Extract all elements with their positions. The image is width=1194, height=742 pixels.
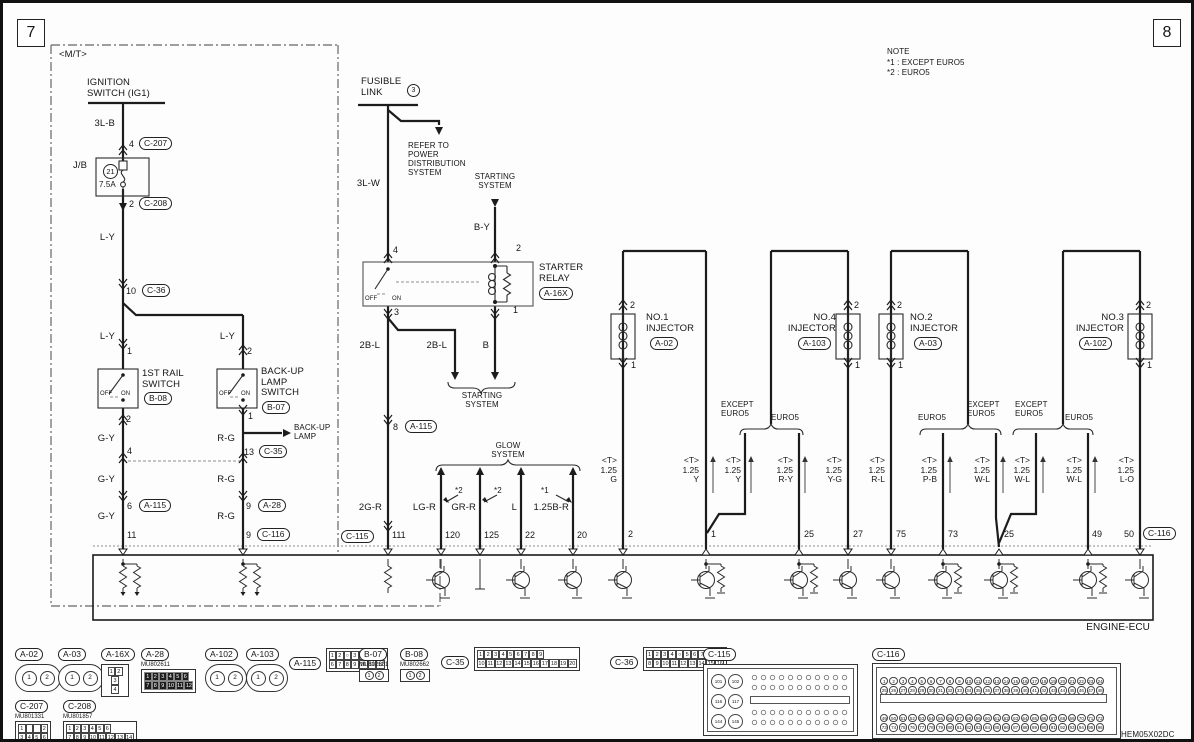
pin-cell: 20 — [568, 659, 577, 668]
ecu-pin-111: 111 — [392, 530, 406, 540]
pin-cell — [26, 724, 34, 733]
connector-b07: B-07 MU802601 12 — [359, 644, 389, 682]
wire-label-2b-l-1: 2B-L — [350, 341, 380, 352]
pin-cell: 6 — [691, 650, 699, 659]
ecu-pin-73: 73 — [948, 529, 958, 539]
pin-cell: 144 — [711, 714, 726, 729]
pin-cell: 6 — [182, 672, 190, 681]
pin-cell: 7 — [522, 650, 530, 659]
connector-ref-a102: A-102 — [1079, 337, 1112, 350]
pin-number-1b: 1 — [248, 411, 253, 421]
ecu-pin-2: 2 — [628, 529, 633, 539]
pin-cell: 4 — [167, 672, 175, 681]
pin-cell: 5 — [507, 650, 515, 659]
backup-lamp-dest-label: BACK-UP LAMP — [294, 423, 330, 441]
pin-cell: 117 — [728, 694, 743, 709]
pin-cell: 12 — [679, 659, 688, 668]
wire-spec-w-l-1: <T> 1.25 W-L — [964, 456, 990, 485]
connector-c35: C-35 123456789 1011121314151617181920 — [441, 644, 580, 671]
wire-label-r-g-1: R-G — [205, 434, 235, 445]
pin-cell: 7 — [144, 681, 152, 690]
ecu-pin-125: 125 — [484, 530, 499, 540]
starting-system-top-label: STARTING SYSTEM — [465, 172, 525, 190]
pin-cell: 18 — [549, 659, 558, 668]
connector-ref-a03: A-03 — [914, 337, 942, 350]
wire-label-3l-w: 3L-W — [350, 179, 380, 190]
pin-cell: 2 — [484, 650, 492, 659]
pin-cell: 76 — [908, 723, 916, 731]
pin-number-9b: 9 — [246, 530, 251, 540]
pin-cell: 8 — [344, 660, 352, 669]
c116-key-slot — [880, 694, 1107, 703]
pin-cell: 14 — [125, 733, 134, 742]
pin-cell: 2 — [83, 671, 98, 686]
connector-a16x: A-16X 12 3 4 — [101, 644, 135, 697]
wiring-diagram-page: 7 8 NOTE *1 : EXCEPT EURO5 *2 : EURO5 <M… — [0, 0, 1194, 742]
wire-label-b-y: B-Y — [460, 223, 490, 234]
switch-on-label-1: ON — [121, 391, 130, 398]
variant-except-euro5-2: EXCEPT EURO5 — [967, 400, 1000, 418]
pin-number-11: 11 — [127, 530, 136, 540]
pin-cell: 1 — [329, 651, 337, 660]
pin-number-4b: 4 — [127, 446, 132, 456]
pin-number-1: 1 — [127, 346, 132, 356]
pin-cell: 81 — [955, 723, 963, 731]
pin-cell: 9 — [653, 659, 661, 668]
injector-4-pin-2: 2 — [854, 300, 859, 310]
connector-c207: C-207 MU801331 12 3456 — [15, 696, 51, 742]
pin-cell: 11 — [670, 659, 679, 668]
wire-spec-y-2: <T> 1.25 Y — [715, 456, 741, 485]
wire-label-2g-r: 2G-R — [352, 503, 382, 514]
connector-ref-a28: A-28 — [258, 499, 286, 512]
injector-2-pin-2: 2 — [897, 300, 902, 310]
pin-cell: 4 — [89, 724, 97, 733]
wire-label-g-y-1: G-Y — [85, 434, 115, 445]
connector-c208-part: MU801857 — [63, 714, 137, 721]
variant-except-euro5-3: EXCEPT EURO5 — [1015, 400, 1048, 418]
wire-spec-y-1: <T> 1.25 Y — [673, 456, 699, 485]
connector-a102-label: A-102 — [205, 648, 238, 661]
connector-ref-c115: C-115 — [341, 530, 374, 543]
pin-cell: 5 — [33, 733, 41, 742]
connector-ref-c35: C-35 — [259, 445, 287, 458]
diagram-code: HEM05X02DC — [1121, 730, 1174, 739]
pin-cell: 1 — [646, 650, 654, 659]
connector-a02-body: 12 — [15, 664, 61, 692]
wire-spec-p-b: <T> 1.25 P-B — [911, 456, 937, 485]
pin-cell: 1 — [406, 671, 415, 680]
pin-cell: 1 — [477, 650, 485, 659]
backup-lamp-switch-label: BACK-UP LAMP SWITCH — [261, 367, 304, 399]
connector-a03-body: 12 — [58, 664, 104, 692]
connector-a28: A-28 MU802611 123456 789101112 — [141, 644, 196, 693]
pin-cell: 3 — [351, 651, 359, 660]
connector-a28-label: A-28 — [141, 648, 169, 661]
pin-cell: 10 — [167, 681, 176, 690]
injector-2-pin-1: 1 — [898, 360, 903, 370]
connector-b08-body: 12 — [400, 669, 430, 682]
pin-number-2: 2 — [129, 199, 134, 209]
connector-ref-c208: C-208 — [139, 197, 172, 210]
pin-cell: 6 — [41, 733, 49, 742]
connector-a115-label: A-115 — [289, 657, 321, 670]
pin-cell: 88 — [1021, 723, 1029, 731]
pin-number-6: 6 — [127, 501, 132, 511]
connector-ref-c116-right: C-116 — [1143, 527, 1176, 540]
connector-c208-body: 123456 7891011121314 — [63, 721, 137, 742]
connector-ref-c36: C-36 — [142, 284, 170, 297]
pin-cell: 102 — [728, 674, 743, 689]
pin-cell: 84 — [983, 723, 991, 731]
injector-2-label: NO.2 INJECTOR — [910, 313, 958, 334]
pin-cell: 2 — [416, 671, 425, 680]
pin-cell: 2 — [375, 671, 384, 680]
connector-ref-a115b: A-115 — [405, 420, 437, 433]
pin-cell: 2 — [336, 651, 344, 660]
ecu-pin-75: 75 — [896, 529, 906, 539]
wire-spec-r-l: <T> 1.25 R-L — [859, 456, 885, 485]
connector-ref-b08: B-08 — [144, 392, 172, 405]
pin-cell: 6 — [104, 724, 112, 733]
pin-number-9: 9 — [246, 501, 251, 511]
pin-cell: 82 — [965, 723, 973, 731]
connector-c207-label: C-207 — [15, 700, 48, 713]
wire-label-r-g-2: R-G — [205, 475, 235, 486]
note-title: NOTE — [887, 47, 910, 56]
pin-cell: 12 — [184, 681, 193, 690]
pin-cell: 75 — [899, 723, 907, 731]
pin-cell: 101 — [711, 674, 726, 689]
injector-4-pin-1: 1 — [855, 360, 860, 370]
injector-1-pin-2: 2 — [630, 300, 635, 310]
connector-c115-body: 101102116117144145 — [703, 664, 858, 736]
connector-a16x-body: 12 3 4 — [101, 664, 129, 697]
pin-cell: 1 — [365, 671, 374, 680]
connector-ref-a115: A-115 — [139, 499, 171, 512]
connector-ref-b07: B-07 — [262, 401, 290, 414]
connector-c35-label: C-35 — [441, 656, 469, 669]
ecu-pin-120: 120 — [445, 530, 460, 540]
pin-cell: 8 — [152, 681, 160, 690]
transmission-variant-label: <M/T> — [59, 50, 87, 61]
pin-cell: 3 — [81, 724, 89, 733]
connector-c115-label: C-115 — [703, 648, 736, 661]
wire-label-r-g-3: R-G — [205, 512, 235, 523]
pin-cell: 4 — [26, 733, 34, 742]
connector-a103-label: A-103 — [246, 648, 279, 661]
wire-label-b: B — [459, 341, 489, 352]
injector-1-pin-1: 1 — [631, 360, 636, 370]
pin-number-8: 8 — [393, 422, 398, 432]
injector-3-label: NO.3 INJECTOR — [1066, 313, 1124, 334]
pin-cell: 7 — [66, 733, 74, 742]
wire-label-l-y-3: L-Y — [205, 332, 235, 343]
pin-cell: 15 — [522, 659, 531, 668]
pin-cell: 3 — [661, 650, 669, 659]
pin-cell — [33, 724, 41, 733]
note-line-2: *2 : EURO5 — [887, 68, 930, 77]
pin-cell: 13 — [115, 733, 124, 742]
pin-cell: 80 — [946, 723, 954, 731]
starting-system-bottom-label: STARTING SYSTEM — [452, 391, 512, 409]
connector-c36-label: C-36 — [610, 656, 638, 669]
connector-c35-body: 123456789 1011121314151617181920 — [474, 647, 580, 671]
wire-label-3l-b: 3L-B — [85, 119, 115, 130]
refer-power-distribution-label: REFER TO POWER DISTRIBUTION SYSTEM — [408, 141, 466, 177]
pin-cell: 90 — [1040, 723, 1048, 731]
pin-cell: 8 — [646, 659, 654, 668]
injector-3-pin-1: 1 — [1147, 360, 1152, 370]
relay-off-label: OFF — [365, 296, 377, 303]
injector-3-pin-2: 2 — [1146, 300, 1151, 310]
pin-cell: 19 — [559, 659, 568, 668]
pin-cell: ○ — [344, 651, 352, 660]
connector-c115: C-115 101102116117144145 — [703, 644, 858, 736]
pin-cell: 2 — [269, 671, 284, 686]
pin-cell: 1 — [65, 671, 80, 686]
ecu-pin-25a: 25 — [804, 529, 814, 539]
pin-cell: 2 — [74, 724, 82, 733]
page-number-right: 8 — [1153, 19, 1181, 47]
ecu-pin-50: 50 — [1124, 529, 1134, 539]
variant-euro5-2: EURO5 — [918, 413, 946, 422]
connector-b08-label: B-08 — [400, 648, 428, 661]
pin-cell: 145 — [728, 714, 743, 729]
fuse-rating: 7.5A — [99, 180, 116, 189]
pin-cell: 11 — [176, 681, 185, 690]
ecu-pin-22: 22 — [525, 530, 535, 540]
pin-cell: 13 — [688, 659, 697, 668]
pin-cell: 2 — [115, 667, 123, 676]
pin-cell: 6 — [514, 650, 522, 659]
switch-on-label-2: ON — [241, 391, 250, 398]
wire-label-2b-l-2: 2B-L — [417, 341, 447, 352]
wire-spec-l-o: <T> 1.25 L-O — [1108, 456, 1134, 485]
pin-cell: 5 — [174, 672, 182, 681]
pin-cell: 9 — [351, 660, 359, 669]
variant-except-euro5-1: EXCEPT EURO5 — [721, 400, 754, 418]
pin-cell: 9 — [159, 681, 167, 690]
star1-marker: *1 — [541, 486, 549, 495]
wire-label-g-y-2: G-Y — [85, 475, 115, 486]
connector-a28-part: MU802611 — [141, 662, 196, 669]
pin-cell: 10 — [89, 733, 98, 742]
pin-cell: 1 — [18, 724, 26, 733]
connector-a102-body: 12 — [205, 664, 247, 692]
injector-4-label: NO.4 INJECTOR — [778, 313, 836, 334]
pin-cell: 2 — [152, 672, 160, 681]
ecu-pin-25b: 25 — [1004, 529, 1014, 539]
engine-ecu-label: ENGINE-ECU — [1078, 623, 1150, 634]
pin-cell: 116 — [711, 694, 726, 709]
pin-number-13: 13 — [244, 447, 254, 457]
c115-key-slot — [750, 696, 850, 704]
ecu-pin-20: 20 — [577, 530, 587, 540]
pin-number-2b: 2 — [247, 346, 252, 356]
pin-cell: 10 — [477, 659, 486, 668]
pin-cell: 74 — [889, 723, 897, 731]
wire-label-l-y-2: L-Y — [85, 332, 115, 343]
pin-cell: 77 — [918, 723, 926, 731]
pin-cell: 94 — [1077, 723, 1085, 731]
pin-cell: 4 — [668, 650, 676, 659]
pin-cell: 1 — [144, 672, 152, 681]
connector-a28-body: 123456 789101112 — [141, 669, 196, 693]
pin-cell: 3 — [492, 650, 500, 659]
wire-label-g-y-3: G-Y — [85, 512, 115, 523]
pin-cell: 87 — [1011, 723, 1019, 731]
connector-b08: B-08 MU802662 12 — [400, 644, 430, 682]
connector-ref-c207: C-207 — [139, 137, 172, 150]
connector-ref-a16x: A-16X — [539, 287, 573, 300]
connector-c116: C-116 1234567891011121314151617181920212… — [872, 644, 1121, 739]
pin-cell: 85 — [993, 723, 1001, 731]
pin-cell: 5 — [96, 724, 104, 733]
wire-spec-y-g: <T> 1.25 Y-G — [816, 456, 842, 485]
pin-cell: 12 — [495, 659, 504, 668]
ignition-switch-label: IGNITION SWITCH (IG1) — [87, 78, 150, 99]
starter-relay-label: STARTER RELAY — [539, 263, 583, 284]
pin-cell: 93 — [1068, 723, 1076, 731]
connector-ref-c116-left: C-116 — [257, 528, 290, 541]
connector-c208: C-208 MU801857 123456 7891011121314 — [63, 696, 137, 742]
pin-cell: 3 — [111, 676, 119, 685]
connector-b07-part: MU802601 — [359, 662, 389, 669]
connector-a03: A-03 12 — [58, 644, 104, 692]
pin-number-2c: 2 — [126, 414, 131, 424]
page-number-left: 7 — [17, 19, 45, 47]
pin-cell: 8 — [74, 733, 82, 742]
c115-pin-row — [750, 682, 849, 693]
pin-cell: 2 — [653, 650, 661, 659]
connector-a102: A-102 12 — [205, 644, 247, 692]
c115-large-pins: 101102116117144145 — [710, 670, 748, 730]
pin-cell: 2 — [228, 671, 243, 686]
connector-c208-label: C-208 — [63, 700, 96, 713]
connector-a02-label: A-02 — [15, 648, 43, 661]
connector-a03-label: A-03 — [58, 648, 86, 661]
wire-label-lg-r: LG-R — [406, 503, 436, 514]
pin-cell: 16 — [531, 659, 540, 668]
connector-a103: A-103 12 — [246, 644, 288, 692]
connector-c116-label: C-116 — [872, 648, 905, 661]
connector-c207-body: 12 3456 — [15, 721, 51, 742]
injector-1-label: NO.1 INJECTOR — [646, 313, 694, 334]
pin-cell: 1 — [22, 671, 37, 686]
connector-c207-part: MU801331 — [15, 714, 51, 721]
rail-switch-label: 1ST RAIL SWITCH — [142, 369, 184, 390]
note-line-1: *1 : EXCEPT EURO5 — [887, 58, 965, 67]
pin-cell: 13 — [504, 659, 513, 668]
pin-cell: 4 — [111, 685, 119, 694]
variant-euro5-1: EURO5 — [771, 413, 799, 422]
relay-pin-4: 4 — [393, 245, 398, 255]
switch-off-label-1: OFF — [100, 391, 112, 398]
pin-cell: 78 — [927, 723, 935, 731]
wire-spec-w-l-2: <T> 1.25 W-L — [1004, 456, 1030, 485]
relay-pin-1: 1 — [513, 305, 518, 315]
pin-cell: 11 — [486, 659, 495, 668]
pin-cell: 8 — [529, 650, 537, 659]
pin-cell: 92 — [1058, 723, 1066, 731]
relay-on-label: ON — [392, 296, 401, 303]
connector-b07-body: 12 — [359, 669, 389, 682]
pin-cell: 14 — [513, 659, 522, 668]
ecu-pin-27: 27 — [853, 529, 863, 539]
connector-b08-part: MU802662 — [400, 662, 430, 669]
fuse-number: 21 — [103, 164, 118, 179]
connector-a103-body: 12 — [246, 664, 288, 692]
wire-spec-w-l-3: <T> 1.25 W-L — [1056, 456, 1082, 485]
pin-cell: 2 — [40, 671, 55, 686]
pin-cell: 1 — [210, 671, 225, 686]
connector-b07-label: B-07 — [359, 648, 387, 661]
pin-cell: 96 — [1096, 723, 1104, 731]
pin-cell: 1 — [66, 724, 74, 733]
pin-cell: 89 — [1030, 723, 1038, 731]
pin-number-4: 4 — [129, 139, 134, 149]
pin-cell: 12 — [106, 733, 115, 742]
pin-cell: 17 — [540, 659, 549, 668]
wire-spec-g: <T> 1.25 G — [591, 456, 617, 485]
pin-cell: 9 — [81, 733, 89, 742]
wire-label-125b-r: 1.25B-R — [527, 503, 569, 514]
wire-spec-r-y: <T> 1.25 R-Y — [767, 456, 793, 485]
connector-ref-a02: A-02 — [650, 337, 678, 350]
glow-system-label: GLOW SYSTEM — [478, 441, 538, 459]
wire-label-l: L — [487, 503, 517, 514]
pin-cell: 1 — [251, 671, 266, 686]
connector-ref-a103: A-103 — [798, 337, 831, 350]
pin-cell: 3 — [159, 672, 167, 681]
pin-cell: 1 — [108, 667, 116, 676]
pin-cell: 4 — [499, 650, 507, 659]
ecu-pin-1: 1 — [711, 529, 716, 539]
connector-a16x-label: A-16X — [101, 648, 135, 661]
star2-marker-b: *2 — [494, 486, 502, 495]
pin-cell: 79 — [936, 723, 944, 731]
pin-cell: 83 — [974, 723, 982, 731]
pin-cell: 95 — [1087, 723, 1095, 731]
pin-cell: ○ — [676, 650, 684, 659]
ecu-pin-49: 49 — [1092, 529, 1102, 539]
pin-cell: 2 — [41, 724, 49, 733]
pin-cell: 7 — [336, 660, 344, 669]
pin-cell: 3 — [18, 733, 26, 742]
pin-cell: 9 — [537, 650, 545, 659]
pin-cell: 6 — [329, 660, 337, 669]
star2-marker-a: *2 — [455, 486, 463, 495]
wire-label-l-y-1: L-Y — [85, 233, 115, 244]
wire-label-gr-r: GR-R — [446, 503, 476, 514]
c115-pin-row — [750, 717, 849, 728]
fusible-link-label: FUSIBLE LINK — [361, 77, 401, 98]
pin-cell: 10 — [661, 659, 670, 668]
variant-euro5-3: EURO5 — [1065, 413, 1093, 422]
fusible-link-number: 3 — [407, 84, 420, 97]
connector-c116-body: 123456789101112131415161718192021222324 … — [872, 663, 1121, 739]
relay-pin-2: 2 — [516, 243, 521, 253]
junction-block-label: J/B — [73, 161, 87, 172]
pin-cell: 11 — [98, 733, 107, 742]
pin-number-10: 10 — [126, 286, 136, 296]
pin-cell: 5 — [683, 650, 691, 659]
connector-a02: A-02 12 — [15, 644, 61, 692]
relay-pin-3: 3 — [394, 307, 399, 317]
switch-off-label-2: OFF — [219, 391, 231, 398]
